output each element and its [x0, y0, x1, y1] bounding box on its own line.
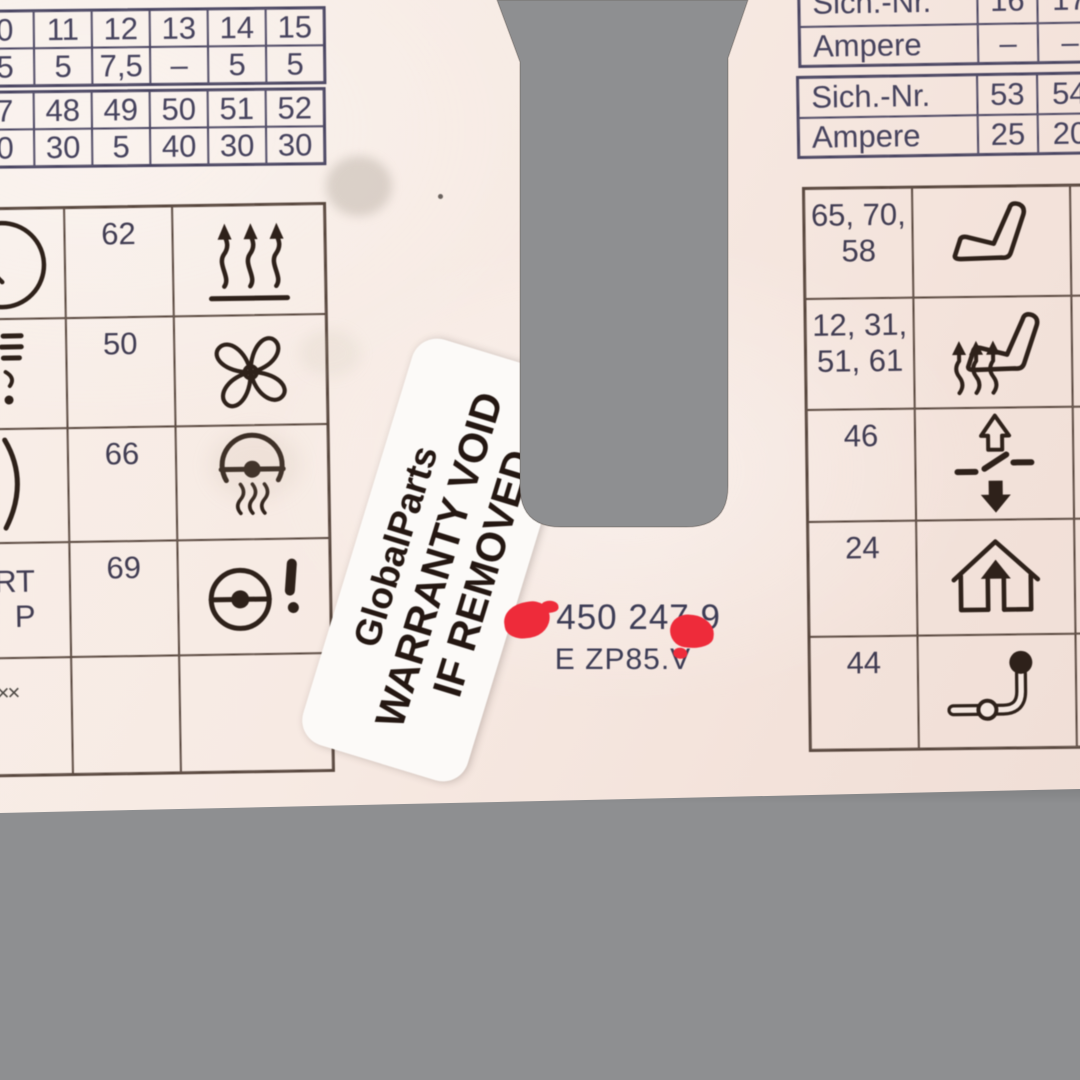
ampere-label: Ampere	[799, 115, 979, 157]
fuse-number-cell: 51	[208, 90, 266, 128]
smudge	[326, 156, 392, 216]
fuse-number-cell: 0	[0, 11, 34, 49]
ampere-cell: 0	[0, 129, 34, 167]
ampere-cell: 25	[978, 114, 1039, 154]
clipped-number-cell: 22	[1071, 295, 1080, 407]
fuse-table-top-left-1: 0 11 12 13 14 15 5 5 7,5 – 5 5	[0, 6, 326, 88]
clipped-curve-icon	[0, 429, 68, 543]
card-notch-cutout	[490, 0, 756, 540]
fuse-number: 24	[808, 521, 917, 637]
heated-steering-wheel-icon	[176, 424, 330, 540]
window-lifter-icon	[915, 407, 1074, 521]
fuse-number-cell: 54	[1037, 73, 1080, 114]
fuse-number: 46	[807, 409, 916, 522]
clipped-circle-icon	[0, 209, 65, 321]
fuse-number: 69	[69, 540, 179, 657]
fuse-number-cell: 52	[266, 89, 324, 127]
ampere-cell: 5	[0, 48, 34, 86]
fuse-number: 12, 31,51, 61	[805, 298, 914, 410]
clipped-number-cell: 2	[1070, 185, 1080, 296]
ampere-cell: 5	[266, 45, 324, 83]
fuse-number-cell: 50	[150, 90, 208, 128]
ampere-cell: 30	[266, 126, 324, 164]
fuse-number-cell: 7	[0, 92, 34, 130]
fuse-number-cell: 49	[92, 91, 150, 129]
left-icon-grid: 62	[0, 202, 335, 778]
cut-text-cell: ××	[0, 657, 73, 776]
sich-nr-label: Sich.-Nr.	[799, 0, 978, 27]
clipped-washer-icon	[0, 319, 67, 431]
power-steering-warning-icon	[177, 538, 331, 655]
ampere-label: Ampere	[800, 24, 979, 66]
heated-seat-icon	[913, 296, 1072, 409]
fuse-number: 44	[809, 636, 918, 750]
ampere-cell: 20	[1038, 113, 1080, 153]
ampere-cell: 5	[34, 48, 92, 86]
fuse-number-cell: 48	[34, 92, 92, 130]
empty-cell	[71, 655, 181, 774]
ampere-cell: 7,5	[92, 47, 150, 85]
background-below-card	[0, 786, 1080, 1080]
fuse-number-cell: 15	[266, 8, 324, 46]
fuse-number: 66	[68, 426, 178, 542]
clipped-number-cell	[1074, 518, 1080, 634]
fuse-number: 62	[64, 206, 174, 318]
ampere-cell: –	[1038, 22, 1080, 62]
heater-airflow-icon	[172, 204, 326, 316]
cut-text-cell: RT P	[0, 542, 71, 659]
cut-icon-cell	[0, 428, 69, 544]
speck	[438, 194, 443, 199]
fuse-number-cell: 13	[150, 9, 208, 47]
clipped-number-cell	[1075, 633, 1080, 747]
clipped-number-cell	[1073, 406, 1080, 519]
sunroof-garage-icon	[916, 519, 1075, 636]
ampere-cell: 30	[34, 129, 92, 167]
fuse-number-cell: 11	[34, 11, 92, 49]
fuse-table-top-right-1: Sich.-Nr. 16 17 Ampere – –	[797, 0, 1080, 68]
fuse-table-top-right-2: Sich.-Nr. 53 54 Ampere 25 20	[796, 71, 1080, 159]
right-icon-grid: 65, 70,58 2 12, 31,51, 61	[802, 183, 1080, 752]
fuse-number-cell: 17	[1037, 0, 1080, 23]
clipped-mark: ××	[0, 685, 21, 700]
trailer-hitch-icon	[917, 634, 1076, 749]
ampere-cell: 40	[150, 127, 208, 165]
cut-icon-cell	[0, 208, 66, 320]
ampere-cell: 30	[208, 127, 266, 165]
cut-icon-cell	[0, 318, 68, 430]
part-code: E ZP85.V	[488, 643, 758, 677]
ampere-cell: –	[978, 23, 1039, 63]
ampere-cell: –	[150, 46, 208, 84]
fuse-number: 50	[66, 316, 176, 428]
ampere-cell: 5	[208, 46, 266, 84]
fuse-number-cell: 12	[92, 10, 150, 48]
fuse-number-cell: 14	[208, 9, 266, 47]
fuse-number: 65, 70,58	[804, 188, 913, 299]
ampere-cell: 5	[92, 128, 150, 166]
sich-nr-label: Sich.-Nr.	[798, 75, 978, 118]
seat-icon	[912, 186, 1071, 298]
fan-icon	[174, 314, 328, 426]
fuse-number-cell: 53	[977, 74, 1038, 115]
fuse-number-cell: 16	[977, 0, 1038, 24]
fuse-table-top-left-2: 7 48 49 50 51 52 0 30 5 40 30 30	[0, 87, 326, 169]
clipped-label: RT P	[0, 564, 36, 636]
